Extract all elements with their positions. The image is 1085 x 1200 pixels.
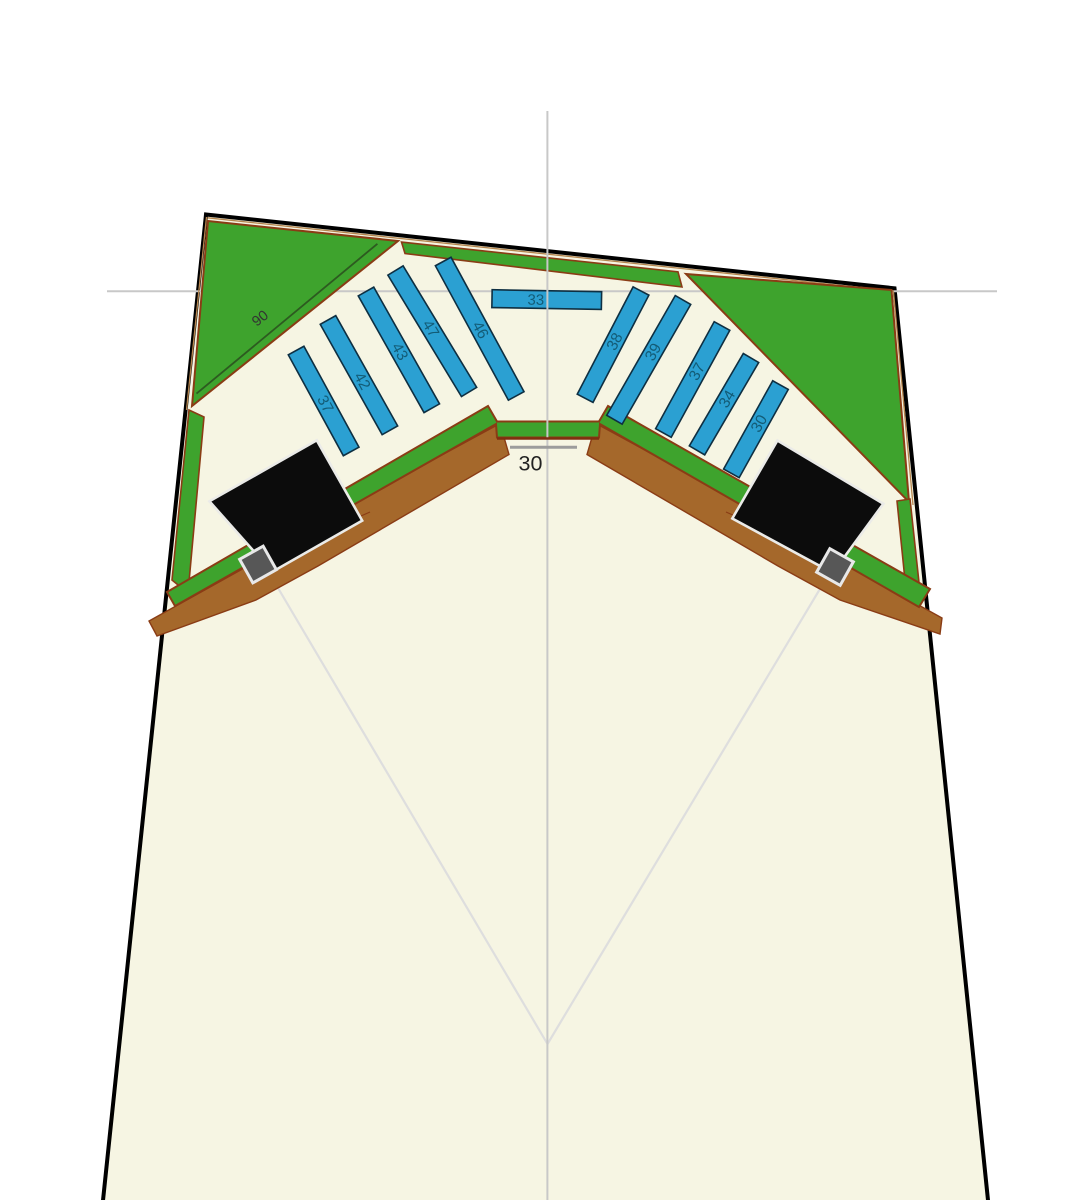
svg-text:33: 33 [527, 292, 544, 309]
svg-text:30: 30 [519, 452, 543, 476]
